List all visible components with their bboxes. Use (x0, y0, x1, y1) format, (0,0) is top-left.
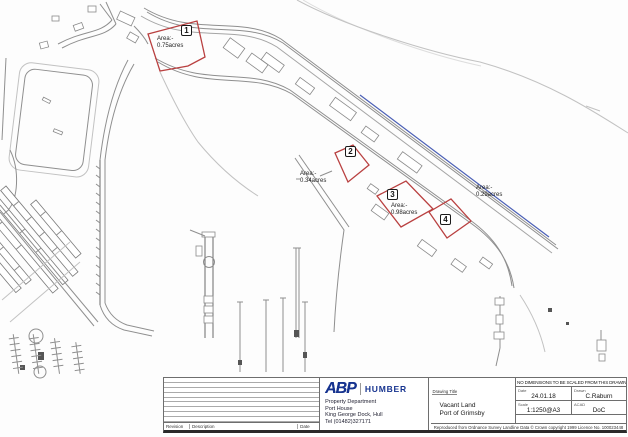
area-number: 3 (390, 190, 394, 199)
company-logo: ABP HUMBER (325, 381, 424, 397)
area-number: 2 (348, 147, 352, 156)
area-acreage: 0.29acres (476, 192, 502, 199)
area-marker-1: 1 (181, 25, 192, 36)
abp-logo: ABP (325, 382, 356, 396)
area-label-text: Area:- (300, 171, 326, 178)
area-acreage: 0.34acres (300, 178, 326, 185)
area-label-1: Area:- 0.75acres (157, 36, 183, 50)
area-marker-3: 3 (387, 189, 398, 200)
drawn-field: Drawn C.Raburn (571, 387, 626, 400)
area-marker-2: 2 (345, 146, 356, 157)
revision-table: Revision Description Date (164, 378, 320, 430)
revision-header: Revision (164, 424, 190, 429)
humber-logo-text: HUMBER (365, 384, 407, 394)
area-acreage: 0.98acres (391, 210, 417, 217)
company-panel: ABP HUMBER Property Department Port Hous… (320, 378, 429, 430)
piers-jetties (190, 230, 308, 372)
company-address: Property Department Port House King Geor… (325, 399, 424, 425)
area-label-text: Area:- (391, 203, 417, 210)
drawing-title-line: Port of Grimsby (439, 410, 512, 418)
info-row-1: Date 24.01.18 Drawn C.Raburn (516, 387, 626, 401)
scale-field: Scale 1:1250@A3 (516, 401, 571, 414)
drawing-title-label: Drawing Title (432, 389, 457, 395)
area-label-3: Area:- 0.98acres (391, 203, 417, 217)
area-acreage: 0.75acres (157, 43, 183, 50)
logo-divider (360, 383, 361, 395)
moorings (8, 333, 85, 374)
address-line: Port House (325, 406, 424, 413)
revision-header-row: Revision Description Date (164, 422, 319, 430)
area-number: 4 (443, 215, 447, 224)
drawn-field-label: Drawn (574, 388, 586, 393)
site-plan-page: 1 2 3 4 Area:- 0.75acres Area:- 0.34acre… (0, 0, 628, 437)
area-label-text: Area:- (476, 185, 502, 192)
lock-entrance (39, 2, 148, 49)
cad-field-label: ACAD (574, 402, 585, 407)
area-label-2: Area:- 0.34acres (300, 171, 326, 185)
no-scaling-notice: NO DIMENSIONS TO BE SCALED FROM THIS DRA… (516, 378, 626, 387)
info-row-2: Scale 1:1250@A3 ACAD DoC (516, 401, 626, 415)
os-copyright: Reproduced from Ordnance Survey Landline… (431, 423, 626, 430)
cad-field: ACAD DoC (571, 401, 626, 414)
drawing-title: Vacant Land Port of Grimsby (439, 402, 512, 418)
quay-wall (2, 58, 154, 336)
waterfront-corridor (141, 8, 558, 332)
site-plan-svg (0, 0, 628, 437)
area-label-4: Area:- 0.29acres (476, 185, 502, 199)
red-area-outlines (148, 21, 471, 238)
date-field-label: Date (518, 388, 526, 393)
misc-structures (494, 295, 606, 366)
address-line: King George Dock, Hull (325, 412, 424, 419)
corridor-buildings (223, 38, 492, 272)
date-field-value: 24.01.18 (516, 393, 571, 400)
drawing-title-line: Vacant Land (439, 402, 512, 410)
title-block: Revision Description Date ABP HUMBER Pro… (163, 377, 627, 433)
drawn-field-value: C.Raburn (572, 393, 626, 400)
scale-field-value: 1:1250@A3 (516, 407, 571, 414)
address-line: Property Department (325, 399, 424, 406)
area-marker-4: 4 (440, 214, 451, 225)
address-line: Tel (01482)327171 (325, 419, 424, 426)
date-header: Date (297, 424, 319, 429)
area-label-text: Area:- (157, 36, 183, 43)
scale-field-label: Scale (518, 402, 528, 407)
date-field: Date 24.01.18 (516, 387, 571, 400)
description-header: Description (190, 424, 297, 429)
area-number: 1 (184, 26, 188, 35)
dock-basin (8, 61, 101, 178)
cad-field-value: DoC (572, 407, 626, 414)
